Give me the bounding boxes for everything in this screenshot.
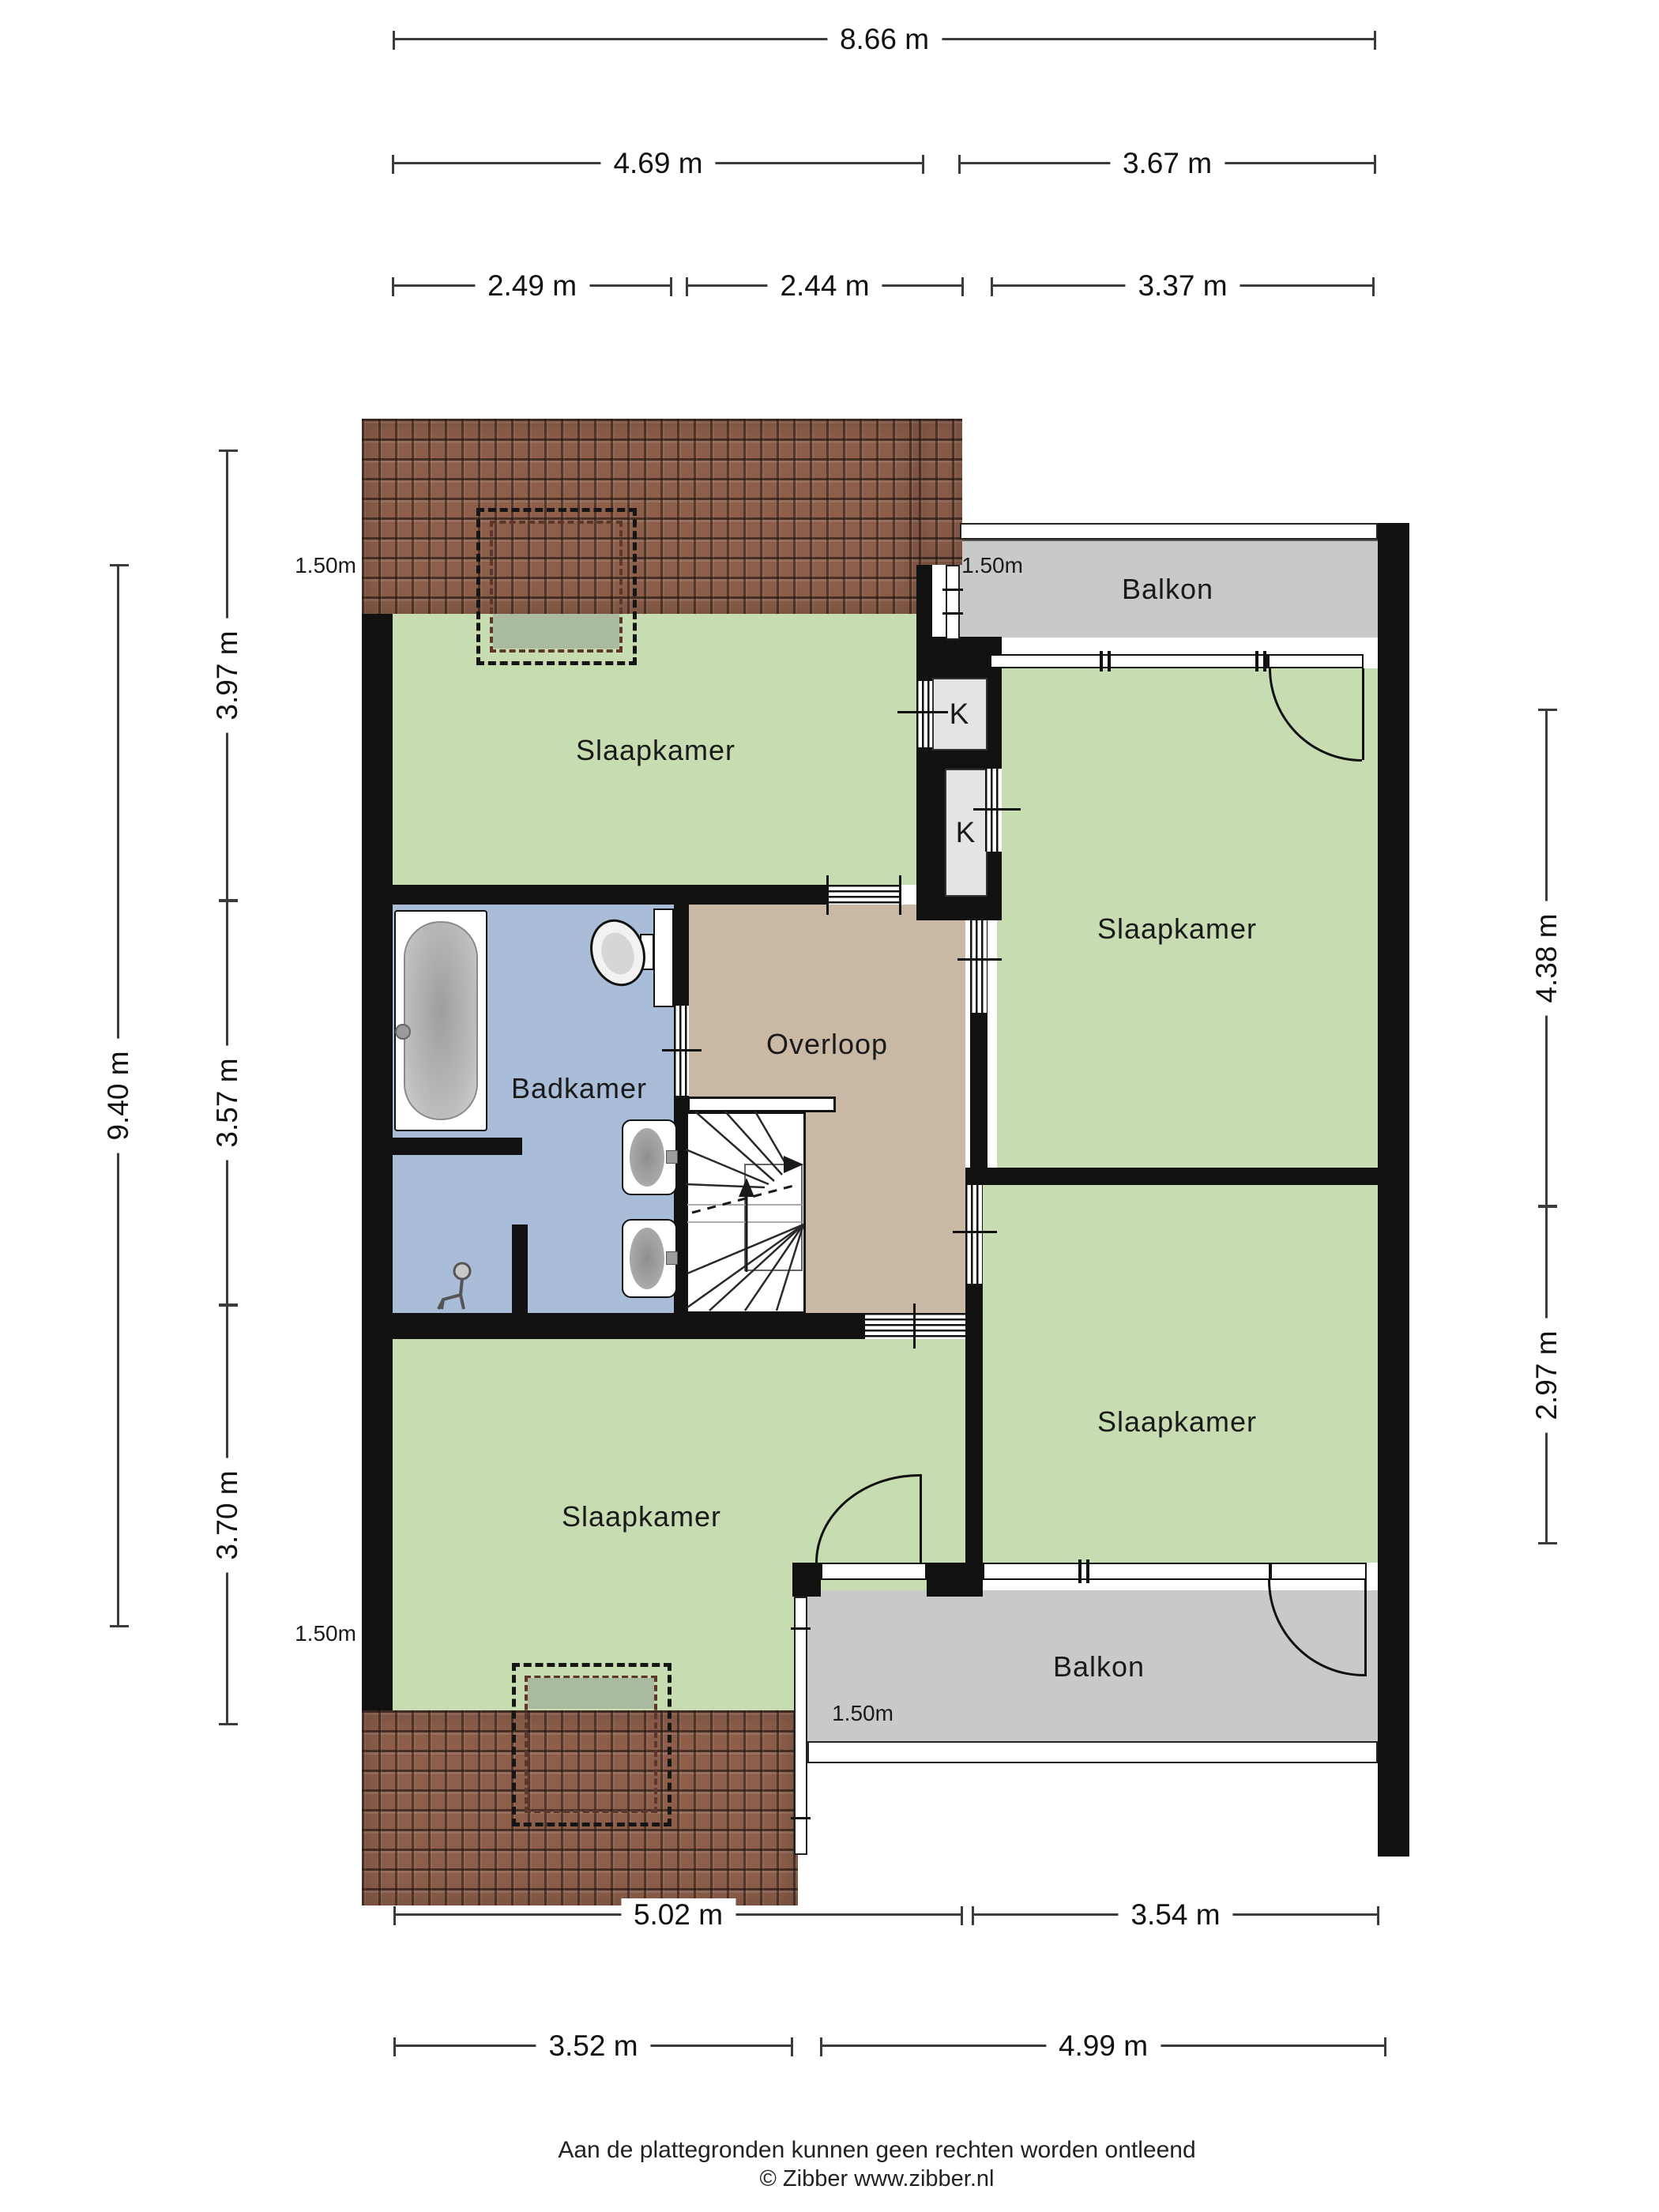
wall-bathtub-stub bbox=[393, 1138, 522, 1155]
door-leaf bbox=[1362, 668, 1364, 760]
dimension-line: 2.49 m bbox=[393, 284, 671, 287]
railing-bottom-balcony-outer bbox=[807, 1741, 1378, 1763]
wall-top-room-bottom bbox=[362, 885, 827, 905]
dimension-label: 4.99 m bbox=[1046, 2030, 1161, 2063]
dimension-label: 3.52 m bbox=[536, 2030, 650, 2063]
wall-outer-left bbox=[362, 614, 393, 1710]
dimension-line: 3.70 m bbox=[226, 1305, 228, 1725]
dimension-label: 3.67 m bbox=[1110, 147, 1224, 180]
wall-balcony-bl-right bbox=[927, 1563, 983, 1597]
closet-label-k2: K bbox=[956, 816, 976, 849]
dormer-top-fill bbox=[493, 614, 619, 649]
dormer-bottom-fill bbox=[528, 1678, 654, 1709]
railing-tick bbox=[942, 589, 963, 591]
dimension-line: 5.02 m bbox=[394, 1913, 962, 1916]
shower-figure-icon bbox=[431, 1260, 486, 1315]
height-marker: 1.50m bbox=[295, 553, 356, 578]
wall-middle-bottom bbox=[362, 1313, 865, 1339]
door-opening-top-bedroom bbox=[827, 885, 901, 905]
railing-tick bbox=[942, 612, 963, 615]
dimension-label: 4.38 m bbox=[1530, 901, 1563, 1015]
passage-tick bbox=[913, 1303, 916, 1349]
dimension-line: 4.99 m bbox=[821, 2045, 1386, 2047]
balcony-label-bottom: Balkon bbox=[1053, 1650, 1145, 1683]
closet-label-k1: K bbox=[950, 698, 969, 731]
stairs-treads bbox=[686, 1112, 806, 1314]
dimension-line: 3.37 m bbox=[991, 284, 1374, 287]
door-tick bbox=[662, 1049, 702, 1051]
window-band-bottom-balcony bbox=[983, 1563, 1270, 1580]
sink-tap-icon bbox=[666, 1251, 678, 1265]
dimension-line: 3.97 m bbox=[226, 450, 228, 901]
dimension-line: 3.57 m bbox=[226, 901, 228, 1305]
dimension-label: 3.97 m bbox=[211, 618, 244, 732]
dimension-label: 2.97 m bbox=[1530, 1318, 1563, 1432]
mullion bbox=[1078, 1559, 1082, 1583]
railing-tick bbox=[791, 1817, 811, 1819]
dimension-label: 2.44 m bbox=[767, 269, 882, 303]
railing-tick bbox=[791, 1627, 811, 1630]
dimension-label: 3.70 m bbox=[211, 1458, 244, 1572]
height-marker: 1.50m bbox=[295, 1621, 356, 1646]
dimension-line: 3.67 m bbox=[959, 162, 1375, 164]
room-label-slaapkamer-bottom-right: Slaapkamer bbox=[1097, 1405, 1257, 1439]
sink-tap-icon bbox=[666, 1150, 678, 1164]
dimension-label: 3.57 m bbox=[211, 1045, 244, 1160]
dimension-line: 2.44 m bbox=[687, 284, 963, 287]
door-tick bbox=[899, 875, 901, 915]
dimension-label: 4.69 m bbox=[600, 147, 715, 180]
window-band-top-balcony bbox=[990, 654, 1268, 668]
door-leaf bbox=[920, 1474, 922, 1563]
sink-basin bbox=[630, 1128, 664, 1187]
wall-right-rooms-divider bbox=[965, 1168, 1409, 1185]
wall-shower-stub bbox=[512, 1224, 528, 1313]
railing-bottom-balcony-left bbox=[794, 1597, 807, 1855]
dimension-label: 9.40 m bbox=[102, 1038, 135, 1153]
dimension-line: 3.54 m bbox=[972, 1913, 1379, 1916]
height-marker: 1.50m bbox=[832, 1701, 893, 1726]
toilet-tank bbox=[653, 908, 674, 1007]
railing-top-balcony-left bbox=[946, 565, 960, 640]
bathtub-faucet-icon bbox=[395, 1024, 411, 1040]
dimension-label: 3.37 m bbox=[1125, 269, 1240, 303]
wall-balcony-bl-left bbox=[792, 1563, 821, 1597]
balcony-label-top: Balkon bbox=[1122, 573, 1213, 606]
door-tick bbox=[826, 875, 829, 915]
door-tick bbox=[953, 1231, 997, 1233]
door-opening-right-bedroom bbox=[970, 920, 987, 1013]
floorplan-page: Slaapkamer Slaapkamer Slaapkamer Slaapka… bbox=[0, 0, 1659, 2212]
door-tick bbox=[957, 958, 1002, 961]
dimension-label: 3.54 m bbox=[1118, 1898, 1232, 1932]
dimension-line: 8.66 m bbox=[393, 38, 1375, 40]
door-opening-bottom-right-bedroom bbox=[965, 1185, 983, 1284]
closet-k1-door-band bbox=[916, 681, 932, 747]
roof-top bbox=[362, 419, 919, 614]
dimension-line: 4.69 m bbox=[393, 162, 924, 164]
room-label-overloop: Overloop bbox=[766, 1028, 888, 1061]
mullion bbox=[1100, 651, 1103, 671]
room-label-slaapkamer-right: Slaapkamer bbox=[1097, 912, 1257, 946]
dimension-line: 9.40 m bbox=[117, 565, 119, 1627]
dimension-line: 3.52 m bbox=[394, 2045, 792, 2047]
room-label-slaapkamer-bottom-left: Slaapkamer bbox=[562, 1500, 721, 1533]
room-label-badkamer: Badkamer bbox=[511, 1072, 647, 1105]
door-opening-top-balcony bbox=[1268, 654, 1364, 668]
stairs-landing-bar bbox=[687, 1097, 836, 1112]
mullion bbox=[1108, 651, 1111, 671]
footer-disclaimer: Aan de plattegronden kunnen geen rechten… bbox=[47, 2137, 1659, 2164]
door-opening-bottom-balcony bbox=[1270, 1563, 1367, 1580]
dimension-line: 4.38 m bbox=[1545, 709, 1548, 1206]
closet-tick bbox=[897, 711, 948, 713]
dimension-label: 5.02 m bbox=[621, 1898, 735, 1932]
mullion bbox=[1255, 651, 1258, 671]
wall-outer-right bbox=[1378, 523, 1409, 1856]
height-marker: 1.50m bbox=[961, 553, 1023, 578]
door-leaf bbox=[1364, 1580, 1367, 1676]
mullion bbox=[1086, 1559, 1089, 1583]
door-opening-bl-balcony bbox=[821, 1563, 927, 1580]
dimension-line: 2.97 m bbox=[1545, 1206, 1548, 1544]
wall-mid-room-left bbox=[970, 1013, 987, 1168]
dimension-label: 8.66 m bbox=[827, 23, 942, 56]
railing-top-balcony-outer bbox=[960, 523, 1378, 540]
mullion bbox=[1263, 651, 1266, 671]
room-slaapkamer-bottom-right-floor bbox=[983, 1185, 1378, 1563]
wall-badkamer-overloop-a bbox=[674, 905, 689, 1006]
closet-tick bbox=[973, 808, 1021, 811]
footer-copyright: © Zibber www.zibber.nl bbox=[47, 2166, 1659, 2192]
sink-basin bbox=[630, 1228, 664, 1289]
room-label-slaapkamer-top-left: Slaapkamer bbox=[576, 734, 735, 767]
roof-top-right-piece bbox=[919, 419, 962, 565]
dimension-label: 2.49 m bbox=[475, 269, 589, 303]
bathtub-basin bbox=[404, 921, 478, 1120]
